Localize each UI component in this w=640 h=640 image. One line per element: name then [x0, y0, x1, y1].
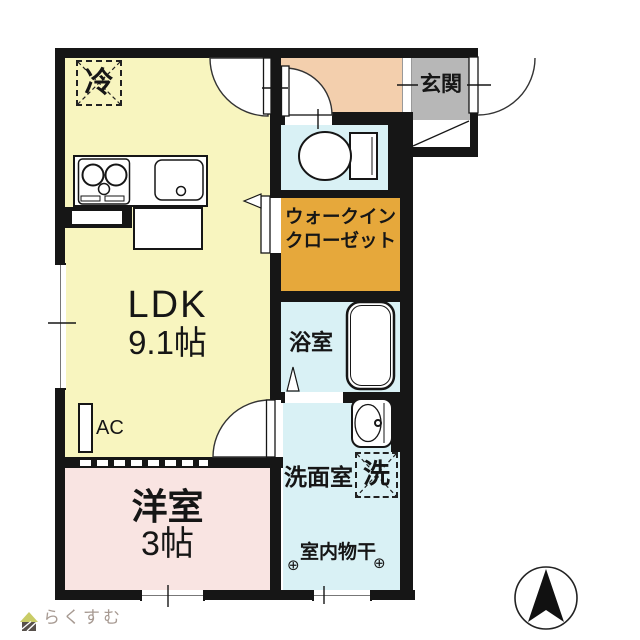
- entrance-label: 玄関: [412, 74, 470, 96]
- room-ldk: [65, 58, 270, 457]
- window-washroom-bottom: [312, 590, 372, 601]
- entrance-step-strip: [402, 58, 412, 120]
- refrigerator-label: 冷: [76, 68, 122, 98]
- ldk-label: LDK: [65, 286, 270, 326]
- wall-wash-nook: [391, 392, 402, 452]
- wall-central: [270, 58, 281, 590]
- western-size-label: 3帖: [65, 527, 270, 563]
- wic-label-line1: ウォークイン: [281, 207, 400, 226]
- ac-unit: [78, 403, 93, 453]
- room-toilet: [281, 125, 388, 190]
- sliding-opening-western: [80, 460, 208, 466]
- kitchen-stub-inset: [72, 211, 122, 224]
- door-gap-bathroom: [285, 392, 343, 403]
- window-western-bottom: [140, 590, 205, 601]
- wic-label-line2: クローゼット: [281, 231, 400, 250]
- wall-wic-bottom: [270, 291, 413, 302]
- western-label: 洋室: [65, 488, 270, 526]
- washer-label: 洗: [355, 460, 398, 488]
- door-gap-washroom: [270, 400, 281, 457]
- wall-right: [400, 112, 413, 600]
- ac-label: AC: [96, 418, 124, 439]
- floor-plan: LDK 9.1帖 洋室 3帖 ウォークイン クローゼット 浴室 洗面室 室内物干…: [0, 0, 640, 640]
- wall-porch-bottom: [400, 147, 478, 157]
- kitchen-counter: [73, 155, 208, 207]
- laundry-hook-right: ⊕: [373, 556, 386, 572]
- laundry-hook-left: ⊕: [287, 558, 300, 574]
- wall-toilet-right: [388, 125, 400, 190]
- door-gap-wic: [270, 198, 281, 253]
- kitchen-counter-extension: [133, 207, 203, 250]
- washroom-label: 洗面室: [284, 465, 353, 489]
- logo-house-icon: [20, 612, 38, 631]
- porch-area: [412, 120, 470, 147]
- room-hallway: [281, 58, 402, 112]
- door-arc-entrance: [478, 58, 535, 115]
- bathroom-label: 浴室: [289, 331, 333, 354]
- door-leaf-entrance: [469, 57, 478, 113]
- door-gap-toilet: [285, 112, 332, 125]
- logo-text: らくすむ: [43, 609, 123, 627]
- wall-top: [55, 48, 478, 58]
- wall-wic-top: [270, 190, 413, 198]
- ldk-size-label: 9.1帖: [65, 326, 270, 361]
- compass-icon: [515, 567, 577, 629]
